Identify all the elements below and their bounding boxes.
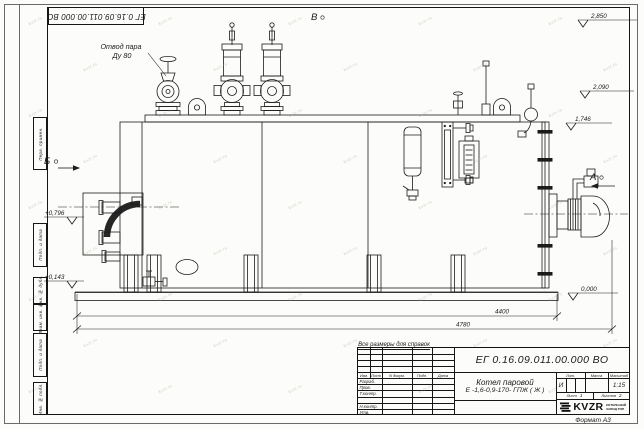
- margin-stamp-podp-data-1: Подп. и дата: [33, 223, 47, 267]
- titleblock-designation: ЕГ 0.16.09.011.00.000 ВО: [454, 348, 630, 372]
- row-utv: Утв.: [358, 409, 382, 415]
- mass-label: Масса: [585, 372, 608, 378]
- kvzr-logo-icon: [560, 402, 571, 413]
- top-designation-box: ЕГ 0.16.09.011.00.000 ВО: [48, 7, 144, 25]
- title-block: ЕГ 0.16.09.011.00.000 ВО Изм. Лист N док…: [357, 347, 630, 415]
- margin-stamp-inv-podl: Инв. № подл.: [33, 382, 47, 415]
- company-name: КОТЕЛЬНЫЙ ЗАВОД РЭП: [606, 403, 626, 411]
- sheet-counter: Лист 1: [556, 392, 593, 399]
- product-name: Котел паровой Е -1,6-0,9-170- ГПЖ ( Ж ): [454, 372, 556, 400]
- margin-stamp-vzam-inv: Взам. инв. №: [33, 304, 47, 331]
- lit-value: И: [556, 378, 566, 392]
- row-tkontr: Т.контр.: [358, 390, 382, 397]
- format-label: Формат А3: [556, 417, 630, 424]
- scale-value: 1:15: [608, 378, 630, 392]
- top-designation-text: ЕГ 0.16.09.011.00.000 ВО: [47, 12, 146, 21]
- margin-stamp-inv-dubl: Инв. № дубл.: [33, 277, 47, 304]
- margin-stamp-podp-data-2: Подп. и дата: [33, 333, 47, 377]
- binding-margin-line: [19, 4, 20, 424]
- drawing-sheet: Отвод пара Ду 80: [0, 0, 644, 430]
- margin-stamp-perv-primen: Перв. примен.: [33, 117, 47, 170]
- sheets-counter: Листов 2: [593, 392, 630, 399]
- logo-text: KVZR: [573, 401, 603, 413]
- col-podp: Подп.: [412, 372, 432, 378]
- col-data: Дата: [432, 372, 454, 378]
- col-dokum: N докум.: [382, 372, 412, 378]
- company-logo: KVZR КОТЕЛЬНЫЙ ЗАВОД РЭП: [556, 399, 630, 415]
